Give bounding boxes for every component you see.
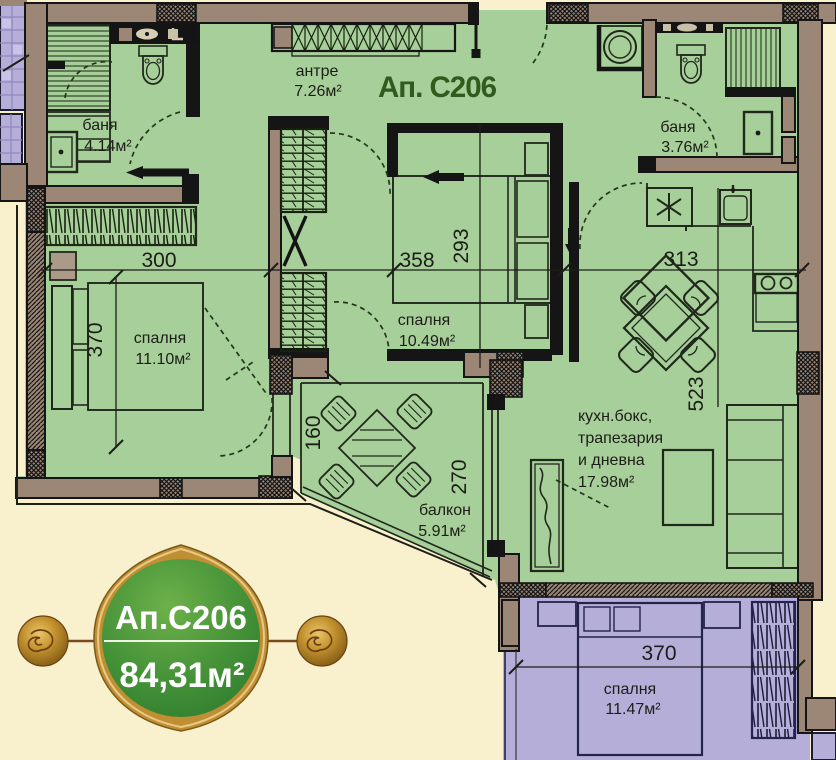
- svg-text:спалня: спалня: [134, 330, 186, 347]
- svg-text:17.98м²: 17.98м²: [578, 474, 635, 491]
- svg-text:7.26м²: 7.26м²: [294, 83, 342, 100]
- svg-text:кухн.бокс,: кухн.бокс,: [578, 408, 652, 425]
- svg-text:523: 523: [685, 376, 708, 411]
- svg-text:баня: баня: [660, 119, 695, 136]
- svg-text:370: 370: [641, 642, 676, 665]
- svg-text:4.14м²: 4.14м²: [84, 138, 132, 155]
- svg-text:84,31м²: 84,31м²: [119, 656, 244, 695]
- svg-text:160: 160: [302, 415, 325, 450]
- svg-text:11.10м²: 11.10м²: [135, 351, 191, 368]
- svg-text:293: 293: [450, 228, 473, 263]
- svg-text:балкон: балкон: [419, 502, 471, 519]
- svg-text:358: 358: [399, 249, 434, 272]
- svg-text:Ап.C206: Ап.C206: [115, 599, 247, 636]
- svg-text:и дневна: и дневна: [578, 452, 645, 469]
- svg-text:5.91м²: 5.91м²: [418, 523, 466, 540]
- svg-text:10.49м²: 10.49м²: [399, 333, 456, 350]
- svg-text:270: 270: [448, 459, 471, 494]
- svg-text:Ап. C206: Ап. C206: [378, 71, 497, 104]
- svg-text:антре: антре: [296, 63, 339, 80]
- svg-text:спалня: спалня: [398, 312, 450, 329]
- svg-text:313: 313: [663, 248, 698, 271]
- svg-text:300: 300: [141, 249, 176, 272]
- svg-text:спалня: спалня: [604, 681, 656, 698]
- svg-text:370: 370: [84, 322, 107, 357]
- svg-text:трапезария: трапезария: [578, 430, 663, 447]
- svg-text:11.47м²: 11.47м²: [605, 701, 661, 718]
- svg-text:баня: баня: [82, 117, 117, 134]
- svg-text:3.76м²: 3.76м²: [661, 139, 709, 156]
